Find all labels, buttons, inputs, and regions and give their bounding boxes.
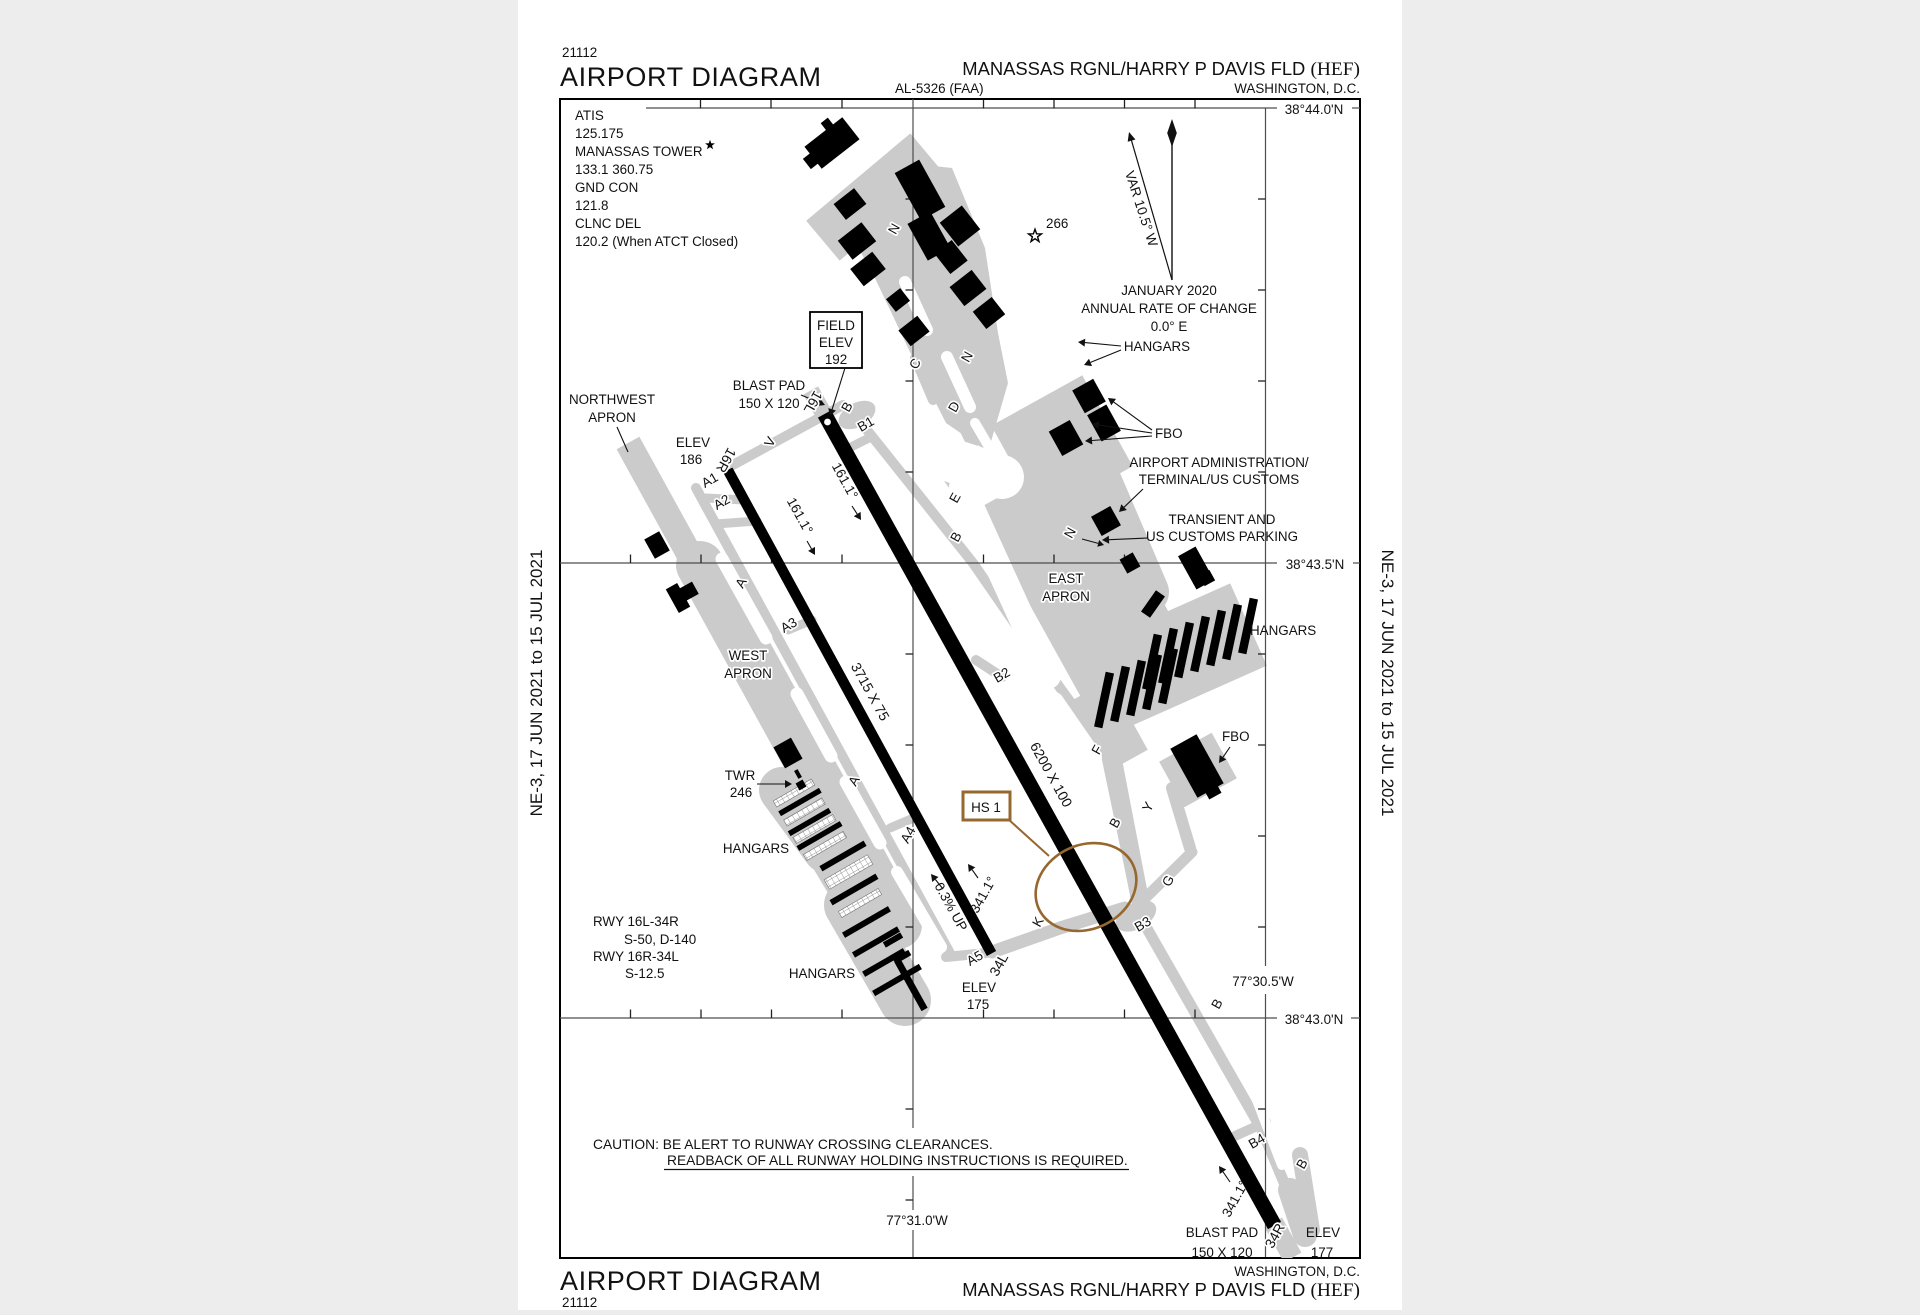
svg-text:HANGARS: HANGARS xyxy=(789,966,855,981)
svg-text:BLAST PAD: BLAST PAD xyxy=(733,378,806,393)
svg-text:120.2 (When ATCT Closed): 120.2 (When ATCT Closed) xyxy=(575,234,738,249)
svg-text:AIRPORT DIAGRAM: AIRPORT DIAGRAM xyxy=(560,62,822,92)
svg-text:APRON: APRON xyxy=(1042,589,1090,604)
svg-text:APRON: APRON xyxy=(588,410,636,425)
svg-text:CLNC DEL: CLNC DEL xyxy=(575,216,641,231)
svg-text:177: 177 xyxy=(1311,1245,1333,1260)
svg-text:GND CON: GND CON xyxy=(575,180,638,195)
svg-text:EAST: EAST xyxy=(1049,571,1084,586)
svg-text:NE-3, 17 JUN 2021 to 15 JUL: NE-3, 17 JUN 2021 to 15 JUL 2021 xyxy=(1378,550,1397,817)
svg-text:38°44.0'N: 38°44.0'N xyxy=(1285,102,1344,117)
svg-text:77°30.5'W: 77°30.5'W xyxy=(1232,974,1294,989)
svg-text:NORTHWEST: NORTHWEST xyxy=(569,392,655,407)
svg-text:AIRPORT ADMINISTRATION/: AIRPORT ADMINISTRATION/ xyxy=(1129,455,1309,470)
svg-text:US CUSTOMS PARKING: US CUSTOMS PARKING xyxy=(1146,529,1298,544)
svg-text:0.0° E: 0.0° E xyxy=(1151,319,1188,334)
svg-text:186: 186 xyxy=(680,452,702,467)
svg-text:AL-5326 (FAA): AL-5326 (FAA) xyxy=(895,81,984,96)
svg-text:192: 192 xyxy=(825,352,847,367)
svg-text:CAUTION: BE ALERT TO RUNWAY CR: CAUTION: BE ALERT TO RUNWAY CROSSING CLE… xyxy=(593,1137,993,1152)
svg-text:FBO: FBO xyxy=(1222,729,1250,744)
svg-text:MANASSAS TOWER: MANASSAS TOWER xyxy=(575,144,703,159)
svg-text:77°31.0'W: 77°31.0'W xyxy=(886,1213,948,1228)
svg-text:APRON: APRON xyxy=(724,666,772,681)
svg-text:MANASSAS RGNL/HARRY P DAVIS FL: MANASSAS RGNL/HARRY P DAVIS FLD (HEF) xyxy=(962,1279,1360,1301)
svg-text:266: 266 xyxy=(1046,216,1068,231)
svg-text:133.1 360.75: 133.1 360.75 xyxy=(575,162,653,177)
svg-text:ANNUAL RATE OF CHANGE: ANNUAL RATE OF CHANGE xyxy=(1081,301,1257,316)
svg-text:WEST: WEST xyxy=(729,648,768,663)
svg-text:125.175: 125.175 xyxy=(575,126,623,141)
svg-text:175: 175 xyxy=(967,997,989,1012)
svg-text:38°43.5'N: 38°43.5'N xyxy=(1286,557,1345,572)
svg-text:S-12.5: S-12.5 xyxy=(625,966,664,981)
svg-text:AIRPORT DIAGRAM: AIRPORT DIAGRAM xyxy=(560,1266,822,1296)
svg-text:TRANSIENT AND: TRANSIENT AND xyxy=(1169,512,1276,527)
svg-text:RWY 16L-34R: RWY 16L-34R xyxy=(593,914,679,929)
svg-text:ATIS: ATIS xyxy=(575,108,604,123)
svg-text:150 X 120: 150 X 120 xyxy=(738,396,799,411)
svg-text:JANUARY 2020: JANUARY 2020 xyxy=(1121,283,1217,298)
svg-text:ELEV: ELEV xyxy=(962,980,996,995)
svg-text:FIELD: FIELD xyxy=(817,318,855,333)
svg-text:WASHINGTON, D.C.: WASHINGTON, D.C. xyxy=(1234,1264,1360,1279)
svg-text:ELEV: ELEV xyxy=(819,335,853,350)
svg-text:FBO: FBO xyxy=(1155,426,1183,441)
svg-text:HS 1: HS 1 xyxy=(971,800,1001,815)
svg-text:NE-3, 17 JUN 2021 to 15 JUL: NE-3, 17 JUN 2021 to 15 JUL 2021 xyxy=(527,550,546,817)
svg-text:S-50, D-140: S-50, D-140 xyxy=(624,932,696,947)
svg-text:HANGARS: HANGARS xyxy=(1250,623,1316,638)
svg-text:MANASSAS RGNL/HARRY P DAVIS FL: MANASSAS RGNL/HARRY P DAVIS FLD (HEF) xyxy=(962,58,1360,80)
svg-text:RWY 16R-34L: RWY 16R-34L xyxy=(593,949,679,964)
svg-text:121.8: 121.8 xyxy=(575,198,609,213)
svg-text:WASHINGTON, D.C.: WASHINGTON, D.C. xyxy=(1234,81,1360,96)
svg-text:246: 246 xyxy=(730,785,752,800)
svg-text:21112: 21112 xyxy=(562,45,597,60)
svg-text:TWR: TWR xyxy=(725,768,756,783)
svg-text:HANGARS: HANGARS xyxy=(723,841,789,856)
svg-text:150 X 120: 150 X 120 xyxy=(1191,1245,1252,1260)
svg-text:BLAST PAD: BLAST PAD xyxy=(1186,1225,1259,1240)
svg-text:ELEV: ELEV xyxy=(1306,1225,1340,1240)
svg-text:HANGARS: HANGARS xyxy=(1124,339,1190,354)
svg-text:READBACK OF ALL RUNWAY HOLDING: READBACK OF ALL RUNWAY HOLDING INSTRUCTI… xyxy=(667,1153,1128,1168)
svg-text:ELEV: ELEV xyxy=(676,435,710,450)
svg-text:38°43.0'N: 38°43.0'N xyxy=(1285,1012,1344,1027)
svg-text:TERMINAL/US CUSTOMS: TERMINAL/US CUSTOMS xyxy=(1139,472,1300,487)
svg-text:21112: 21112 xyxy=(562,1295,597,1310)
